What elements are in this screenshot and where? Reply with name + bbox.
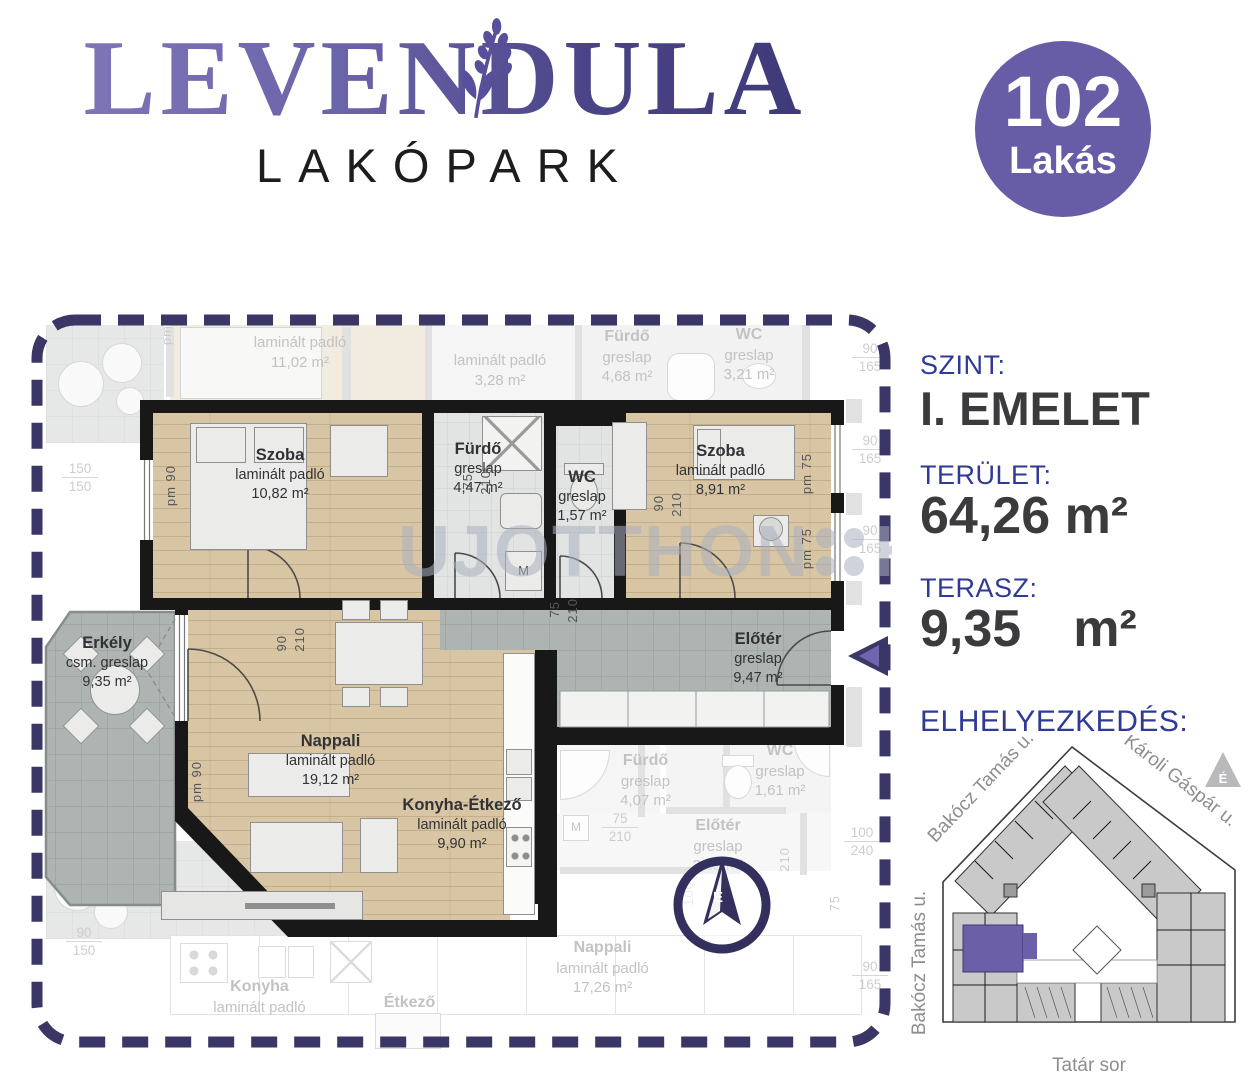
flyer-page: LEVENDULA LAKÓPARK 102 Lakás SZINT: I. E… (0, 0, 1254, 1080)
apartment-number: 102 (975, 67, 1151, 138)
room-label-erkely: Erkélycsm. greslap9,35 m² (52, 633, 162, 691)
dimension: pm 75 (800, 453, 813, 494)
room-label-wc: WCgreslap1,57 m² (542, 467, 622, 525)
north-letter: É (713, 889, 723, 906)
site-map: É Bakócz Tamás u. Károli Gáspár u. Bakóc… (905, 735, 1254, 1080)
brand-logo-text: LEVENDULA (40, 22, 850, 135)
floor-value: I. EMELET (920, 381, 1150, 436)
watermark-dots-icon (816, 525, 868, 579)
dimension: pm 90 (164, 465, 177, 506)
chair (380, 600, 408, 620)
apartment-label: Lakás (975, 142, 1151, 180)
dimension: pm 75 (800, 528, 813, 569)
floor-label: SZINT: (920, 350, 1006, 381)
dimension: 75 (461, 473, 474, 489)
room-label-konyha: Konyha-Étkezőlaminált padló9,90 m² (392, 795, 532, 853)
brand-subtitle: LAKÓPARK (40, 138, 850, 193)
entry-opening (831, 631, 844, 685)
dimension: 90 (652, 495, 665, 511)
hall-cabinets (560, 691, 829, 727)
room-label-szoba2: Szobalaminált padló8,91 m² (648, 441, 793, 499)
dining-table (335, 622, 423, 685)
coffee-table (250, 822, 343, 873)
tv-icon (245, 903, 335, 909)
terrace-unit: m² (1073, 600, 1137, 658)
apartment-number-badge: 102 Lakás (975, 41, 1151, 217)
dimension: 210 (566, 598, 579, 623)
street-left: Bakócz Tamás u. (909, 891, 930, 1035)
chair (380, 687, 408, 707)
dimension: 90 (275, 635, 288, 651)
dimension: 210 (670, 492, 683, 517)
terrace-value: 9,35m² (920, 599, 1137, 659)
room-label-szoba1: Szobalaminált padló10,82 m² (215, 445, 345, 503)
watermark: UJOTTHONHU (398, 511, 892, 593)
dimension: 75 (548, 601, 561, 617)
dimension: pm 90 (190, 761, 203, 802)
chair (342, 687, 370, 707)
dimension: 210 (293, 627, 306, 652)
room-label-eloter: Előtérgreslap9,47 m² (698, 629, 818, 687)
area-value: 64,26 m² (920, 486, 1128, 546)
kitchen-sink (506, 749, 532, 775)
room-label-nappali: Nappalilaminált padló19,12 m² (268, 731, 393, 789)
chair (342, 600, 370, 620)
north-compass-icon: É (678, 858, 766, 949)
floor-plan: M laminált padló11,02 m² laminált padló3… (30, 313, 892, 1049)
terrace-number: 9,35 (920, 600, 1021, 658)
dimension: 210 (479, 470, 492, 495)
location-label: ELHELYEZKEDÉS: (920, 705, 1188, 739)
site-map-compass-letter: É (1219, 771, 1228, 786)
site-map-compass-icon: É (1205, 752, 1241, 787)
street-bottom: Tatár sor (1052, 1055, 1127, 1076)
lavender-sprig-icon (447, 16, 513, 120)
